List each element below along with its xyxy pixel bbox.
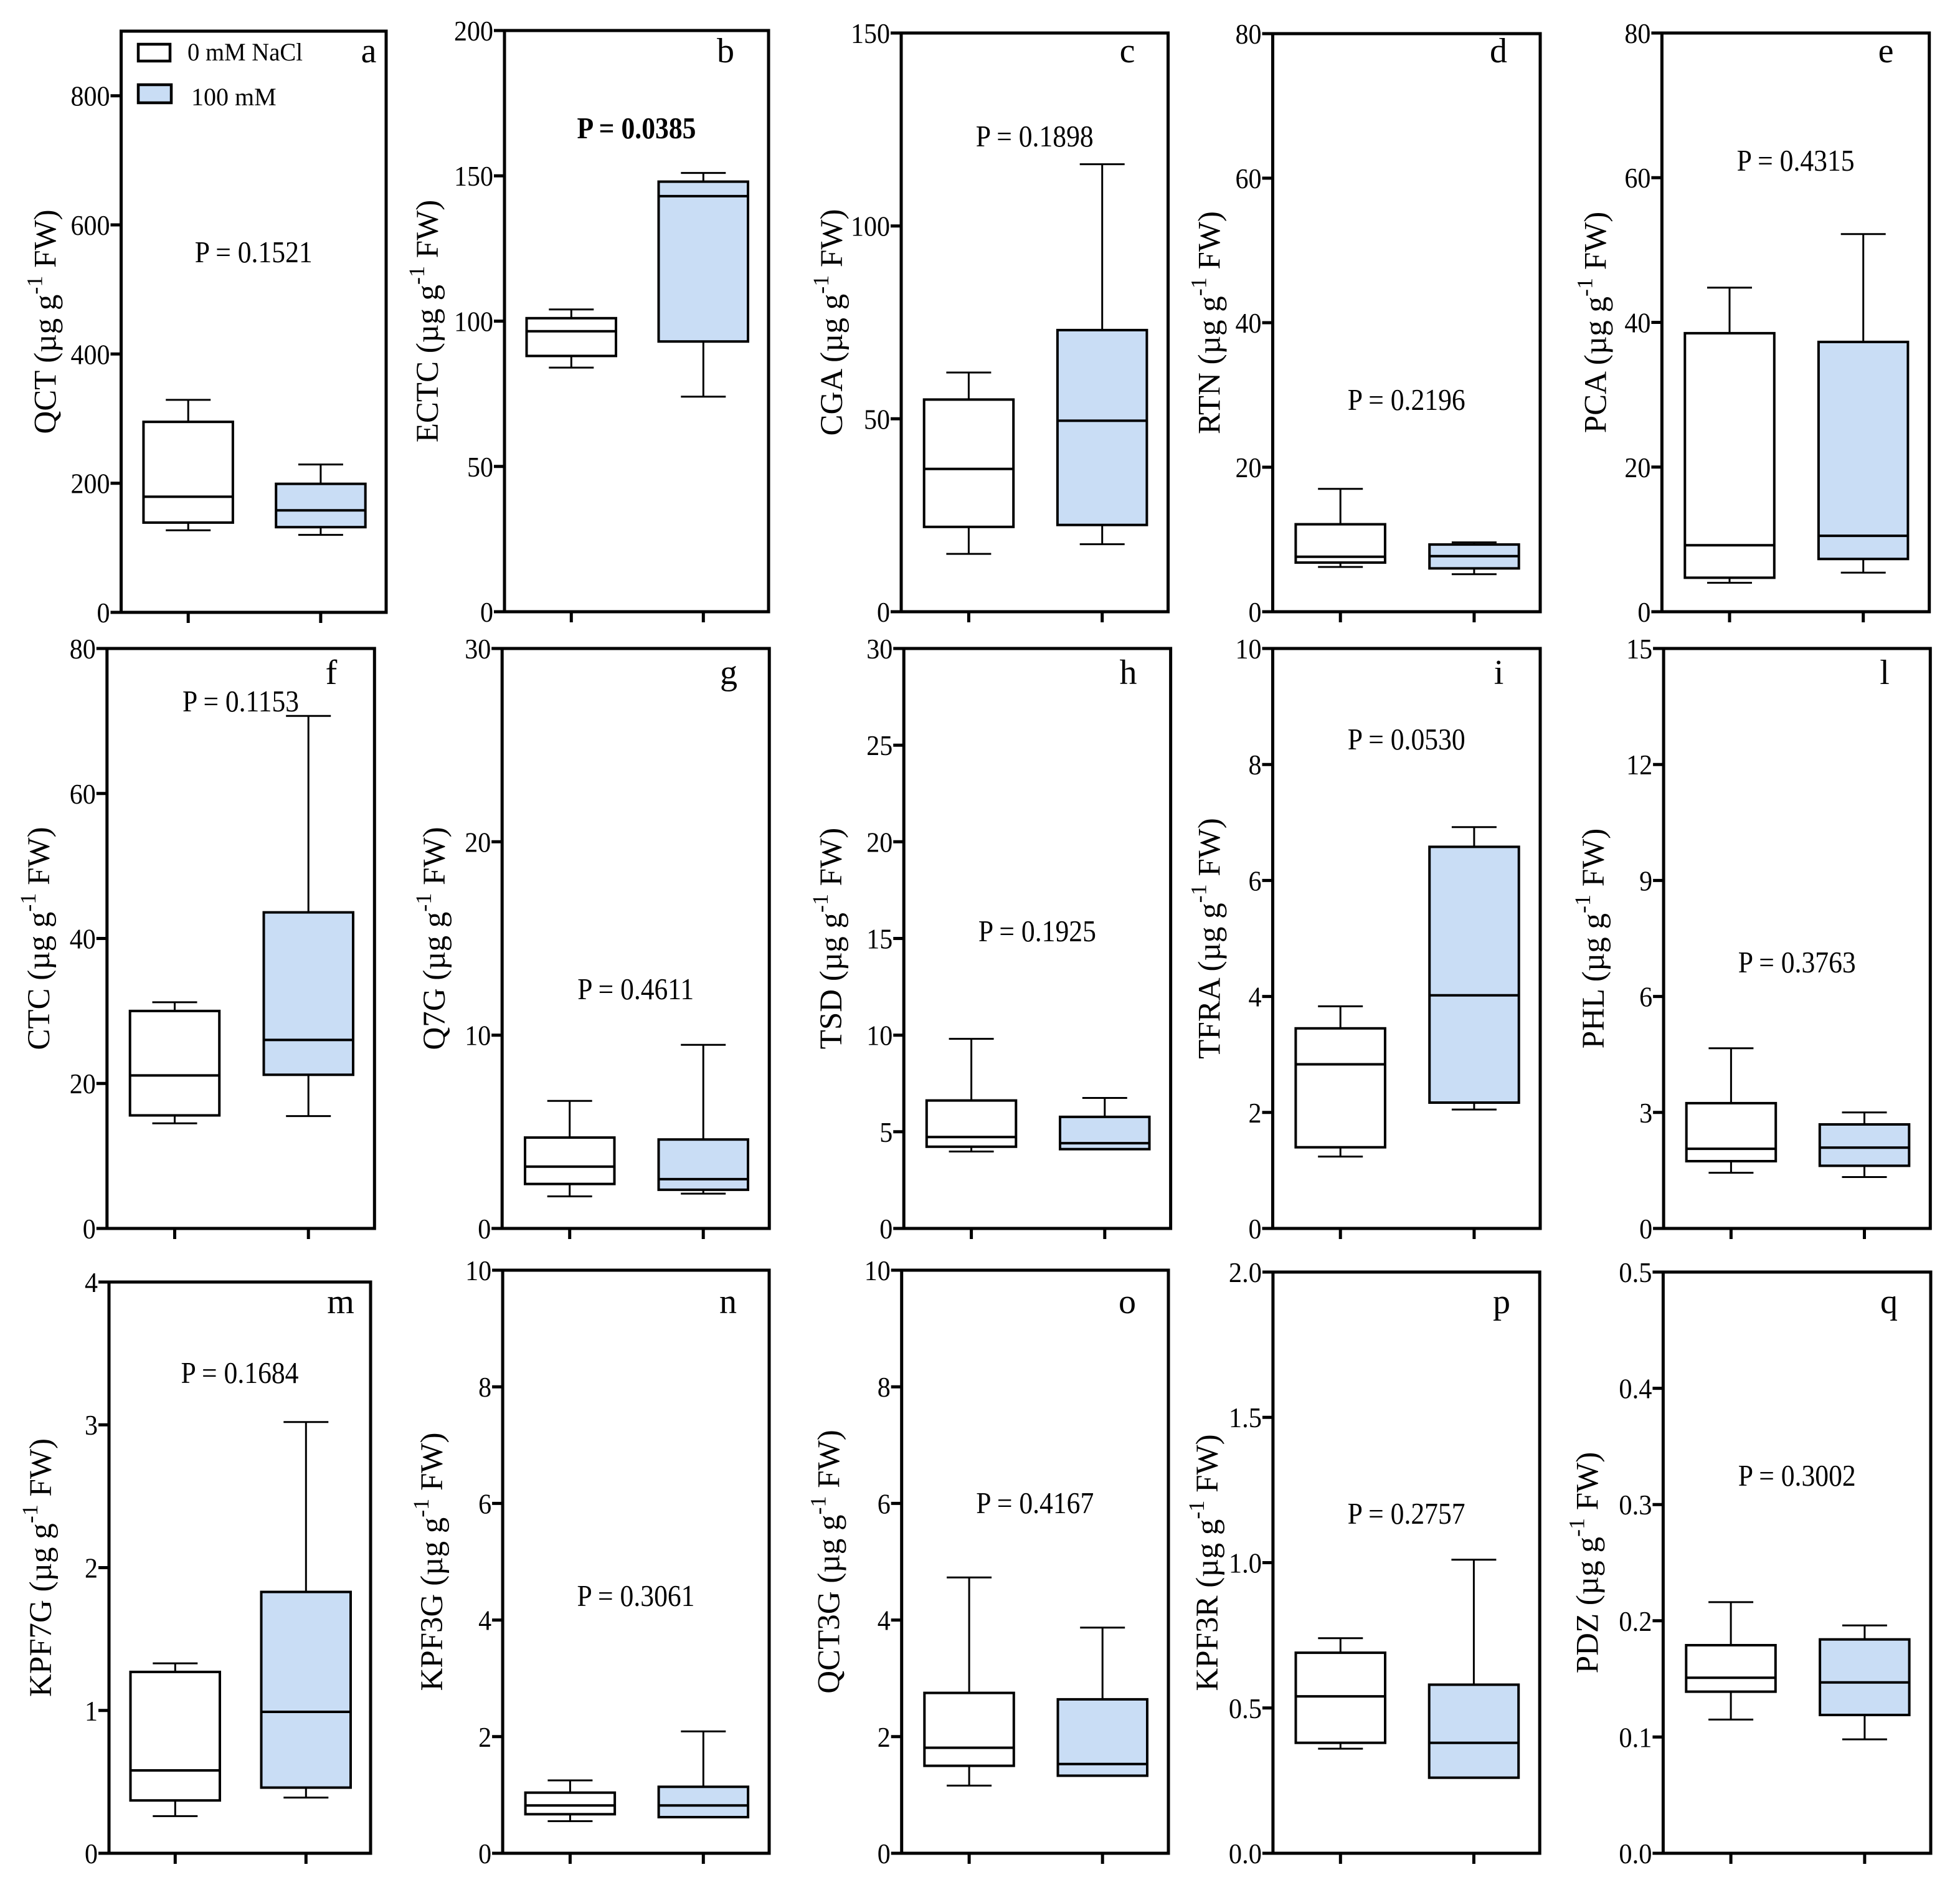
- svg-text:80: 80: [1624, 17, 1650, 49]
- svg-text:e: e: [1878, 32, 1894, 70]
- svg-text:g: g: [720, 653, 737, 692]
- svg-text:40: 40: [1236, 307, 1262, 339]
- svg-text:20: 20: [70, 1068, 96, 1099]
- svg-text:0.5: 0.5: [1619, 1256, 1652, 1288]
- svg-text:ECTC (µg g-1 FW): ECTC (µg g-1 FW): [404, 200, 445, 442]
- svg-text:P = 0.4167: P = 0.4167: [976, 1486, 1094, 1520]
- svg-text:6: 6: [878, 1488, 891, 1519]
- svg-text:p: p: [1493, 1283, 1510, 1321]
- svg-text:0.4: 0.4: [1619, 1373, 1652, 1405]
- svg-text:6: 6: [1639, 981, 1652, 1013]
- svg-text:5: 5: [879, 1116, 892, 1148]
- svg-text:0.3: 0.3: [1619, 1489, 1652, 1521]
- svg-text:100: 100: [851, 211, 890, 242]
- svg-text:1.5: 1.5: [1229, 1402, 1262, 1433]
- svg-text:QCT (µg g-1 FW): QCT (µg g-1 FW): [22, 209, 64, 434]
- svg-text:2: 2: [878, 1721, 891, 1753]
- svg-text:100: 100: [454, 306, 493, 338]
- svg-text:60: 60: [1236, 163, 1262, 194]
- svg-text:4: 4: [878, 1605, 891, 1636]
- svg-text:8: 8: [478, 1371, 491, 1403]
- svg-text:0: 0: [1249, 596, 1262, 628]
- svg-text:4: 4: [478, 1605, 491, 1636]
- svg-text:15: 15: [866, 923, 892, 955]
- svg-text:6: 6: [1249, 865, 1262, 896]
- svg-text:0: 0: [1249, 1213, 1262, 1245]
- svg-text:20: 20: [465, 826, 491, 858]
- svg-text:8: 8: [878, 1371, 891, 1403]
- svg-text:PHL (µg g-1 FW): PHL (µg g-1 FW): [1570, 829, 1611, 1049]
- svg-text:2: 2: [85, 1552, 98, 1584]
- svg-text:i: i: [1494, 653, 1504, 692]
- svg-text:RTN (µg g-1 FW): RTN (µg g-1 FW): [1186, 211, 1228, 434]
- svg-text:10: 10: [866, 1020, 892, 1052]
- svg-text:20: 20: [1624, 452, 1650, 483]
- svg-text:400: 400: [71, 338, 110, 370]
- svg-text:a: a: [361, 32, 377, 70]
- svg-text:0.5: 0.5: [1229, 1693, 1262, 1724]
- svg-text:0.1: 0.1: [1619, 1721, 1652, 1753]
- svg-text:0 mM NaCl: 0 mM NaCl: [187, 38, 303, 66]
- svg-text:0: 0: [1637, 596, 1650, 628]
- svg-text:q: q: [1880, 1283, 1898, 1321]
- svg-text:10: 10: [1236, 633, 1262, 665]
- svg-text:P = 0.3763: P = 0.3763: [1738, 945, 1856, 979]
- svg-text:60: 60: [1624, 162, 1650, 194]
- svg-text:o: o: [1119, 1283, 1136, 1321]
- svg-text:10: 10: [465, 1020, 491, 1052]
- svg-text:1: 1: [85, 1695, 98, 1727]
- svg-text:10: 10: [864, 1255, 891, 1286]
- svg-text:30: 30: [465, 633, 491, 665]
- svg-text:0: 0: [478, 1838, 491, 1869]
- svg-text:0: 0: [1639, 1213, 1652, 1245]
- svg-text:TFRA (µg g-1 FW): TFRA (µg g-1 FW): [1186, 818, 1228, 1059]
- svg-text:25: 25: [866, 729, 892, 761]
- svg-text:P = 0.4611: P = 0.4611: [577, 972, 694, 1006]
- svg-text:0: 0: [879, 1213, 892, 1245]
- svg-text:600: 600: [71, 209, 110, 241]
- svg-text:P = 0.2757: P = 0.2757: [1348, 1496, 1465, 1531]
- svg-text:2: 2: [478, 1721, 491, 1753]
- svg-text:10: 10: [465, 1255, 491, 1286]
- svg-text:150: 150: [454, 160, 493, 192]
- svg-text:l: l: [1880, 653, 1890, 692]
- svg-text:80: 80: [1236, 18, 1262, 50]
- svg-text:150: 150: [851, 17, 890, 49]
- svg-text:c: c: [1120, 32, 1135, 70]
- svg-text:0.0: 0.0: [1619, 1838, 1652, 1869]
- svg-text:8: 8: [1249, 749, 1262, 781]
- svg-text:KPF7G (µg g-1 FW): KPF7G (µg g-1 FW): [17, 1438, 59, 1697]
- svg-text:4: 4: [1249, 981, 1262, 1013]
- svg-text:0.0: 0.0: [1229, 1838, 1262, 1869]
- svg-text:P = 0.1684: P = 0.1684: [181, 1356, 299, 1390]
- svg-text:0: 0: [83, 1213, 96, 1245]
- svg-text:P = 0.4315: P = 0.4315: [1737, 143, 1855, 178]
- svg-text:6: 6: [478, 1488, 491, 1519]
- svg-text:50: 50: [467, 451, 493, 483]
- svg-text:P = 0.3002: P = 0.3002: [1738, 1458, 1856, 1493]
- svg-text:f: f: [326, 653, 338, 692]
- svg-text:80: 80: [70, 633, 96, 665]
- svg-text:0: 0: [480, 596, 493, 628]
- svg-text:40: 40: [1624, 307, 1650, 339]
- svg-text:0: 0: [878, 1838, 891, 1869]
- svg-text:CGA (µg g-1 FW): CGA (µg g-1 FW): [808, 209, 850, 436]
- svg-text:0: 0: [478, 1213, 491, 1245]
- svg-text:3: 3: [85, 1409, 98, 1441]
- svg-text:1.0: 1.0: [1229, 1547, 1262, 1579]
- svg-text:PDZ (µg g-1 FW): PDZ (µg g-1 FW): [1564, 1452, 1605, 1673]
- svg-text:200: 200: [454, 15, 493, 47]
- svg-text:KPF3G (µg g-1 FW): KPF3G (µg g-1 FW): [409, 1433, 450, 1691]
- svg-text:d: d: [1490, 32, 1507, 70]
- svg-text:50: 50: [864, 403, 890, 435]
- svg-text:2.0: 2.0: [1229, 1256, 1262, 1288]
- svg-text:30: 30: [866, 633, 892, 665]
- svg-text:n: n: [719, 1283, 737, 1321]
- svg-text:P = 0.1153: P = 0.1153: [182, 684, 299, 718]
- svg-text:P = 0.1898: P = 0.1898: [976, 119, 1094, 153]
- svg-text:Q7G (µg g-1 FW): Q7G (µg g-1 FW): [411, 827, 452, 1050]
- svg-text:0: 0: [877, 596, 890, 628]
- svg-text:2: 2: [1249, 1097, 1262, 1129]
- svg-text:TSD (µg g-1 FW): TSD (µg g-1 FW): [808, 828, 849, 1049]
- svg-text:0: 0: [97, 597, 110, 629]
- svg-text:9: 9: [1639, 865, 1652, 896]
- svg-text:m: m: [327, 1283, 354, 1321]
- svg-text:4: 4: [85, 1266, 98, 1298]
- svg-text:P = 0.2196: P = 0.2196: [1348, 382, 1465, 417]
- svg-text:P = 0.1521: P = 0.1521: [195, 235, 313, 269]
- svg-text:15: 15: [1626, 633, 1652, 665]
- svg-text:h: h: [1120, 653, 1137, 692]
- svg-text:b: b: [717, 32, 734, 70]
- svg-text:P = 0.0530: P = 0.0530: [1348, 722, 1465, 756]
- svg-text:P = 0.0385: P = 0.0385: [577, 111, 696, 145]
- svg-text:CTC (µg g-1 FW): CTC (µg g-1 FW): [16, 827, 57, 1050]
- svg-text:KPF3R (µg g-1 FW): KPF3R (µg g-1 FW): [1184, 1434, 1225, 1691]
- svg-text:20: 20: [866, 826, 892, 858]
- svg-text:60: 60: [70, 778, 96, 810]
- svg-text:40: 40: [70, 923, 96, 955]
- svg-text:0.2: 0.2: [1619, 1605, 1652, 1637]
- svg-text:20: 20: [1236, 452, 1262, 483]
- svg-text:200: 200: [71, 468, 110, 500]
- svg-text:P = 0.1925: P = 0.1925: [978, 914, 1096, 948]
- svg-text:PCA (µg g-1 FW): PCA (µg g-1 FW): [1572, 212, 1613, 434]
- svg-text:12: 12: [1626, 749, 1652, 781]
- svg-text:P = 0.3061: P = 0.3061: [577, 1579, 695, 1613]
- svg-text:100 mM: 100 mM: [191, 83, 277, 111]
- svg-text:QCT3G (µg g-1 FW): QCT3G (µg g-1 FW): [806, 1430, 847, 1693]
- svg-text:3: 3: [1639, 1097, 1652, 1129]
- svg-text:800: 800: [71, 80, 110, 112]
- svg-text:0: 0: [85, 1838, 98, 1869]
